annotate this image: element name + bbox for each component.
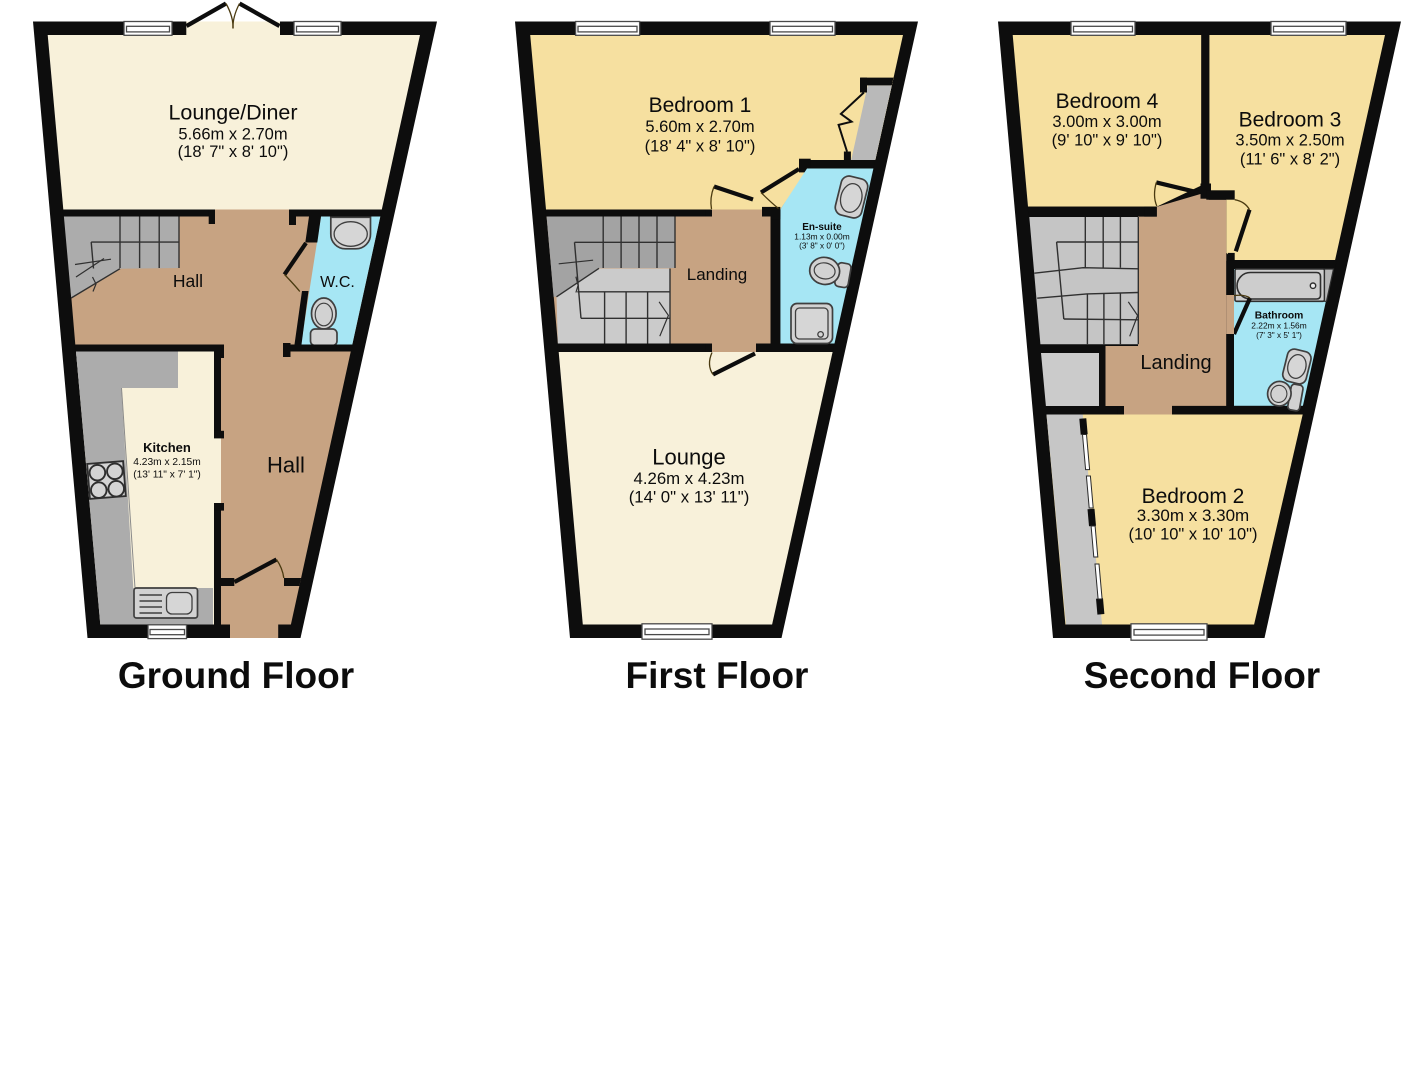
svg-text:Lounge/Diner: Lounge/Diner [168,101,297,125]
svg-text:Second Floor: Second Floor [1084,655,1320,696]
svg-text:(10' 10" x 10' 10"): (10' 10" x 10' 10") [1128,526,1257,544]
svg-text:Bedroom 2: Bedroom 2 [1142,485,1245,508]
svg-text:(18' 4" x 8' 10"): (18' 4" x 8' 10") [645,138,756,156]
svg-text:Bedroom 4: Bedroom 4 [1056,90,1159,113]
svg-text:Lounge: Lounge [652,445,725,470]
svg-text:Kitchen: Kitchen [143,440,191,455]
svg-text:Landing: Landing [687,265,748,284]
svg-text:Landing: Landing [1140,352,1211,374]
svg-text:(18' 7" x 8' 10"): (18' 7" x 8' 10") [178,143,289,161]
svg-text:2.22m x 1.56m: 2.22m x 1.56m [1251,321,1306,331]
svg-text:5.60m x 2.70m: 5.60m x 2.70m [645,118,754,136]
svg-text:4.23m x 2.15m: 4.23m x 2.15m [133,457,200,468]
svg-text:Hall: Hall [173,271,203,291]
svg-text:(3' 8" x 0' 0"): (3' 8" x 0' 0") [799,242,845,251]
svg-text:5.66m x 2.70m: 5.66m x 2.70m [178,126,287,144]
svg-text:(7' 3" x 5' 1"): (7' 3" x 5' 1") [1256,331,1302,340]
svg-text:W.C.: W.C. [320,274,355,291]
svg-text:(9' 10" x 9' 10"): (9' 10" x 9' 10") [1052,132,1163,150]
svg-text:3.00m x 3.00m: 3.00m x 3.00m [1052,113,1161,131]
svg-text:Bedroom 1: Bedroom 1 [649,94,752,117]
svg-text:(14' 0" x 13' 11"): (14' 0" x 13' 11") [629,488,750,507]
svg-text:(13' 11" x 7' 1"): (13' 11" x 7' 1") [133,470,201,481]
svg-text:Hall: Hall [267,453,305,478]
svg-text:Bedroom 3: Bedroom 3 [1239,109,1342,132]
svg-text:(11' 6" x 8' 2"): (11' 6" x 8' 2") [1240,151,1340,169]
svg-text:4.26m x 4.23m: 4.26m x 4.23m [634,469,745,488]
svg-text:3.30m x 3.30m: 3.30m x 3.30m [1137,506,1249,525]
svg-text:1.13m x 0.00m: 1.13m x 0.00m [794,232,849,242]
svg-text:Ground Floor: Ground Floor [118,655,354,696]
svg-text:First Floor: First Floor [626,655,809,696]
svg-text:3.50m x 2.50m: 3.50m x 2.50m [1235,132,1344,150]
